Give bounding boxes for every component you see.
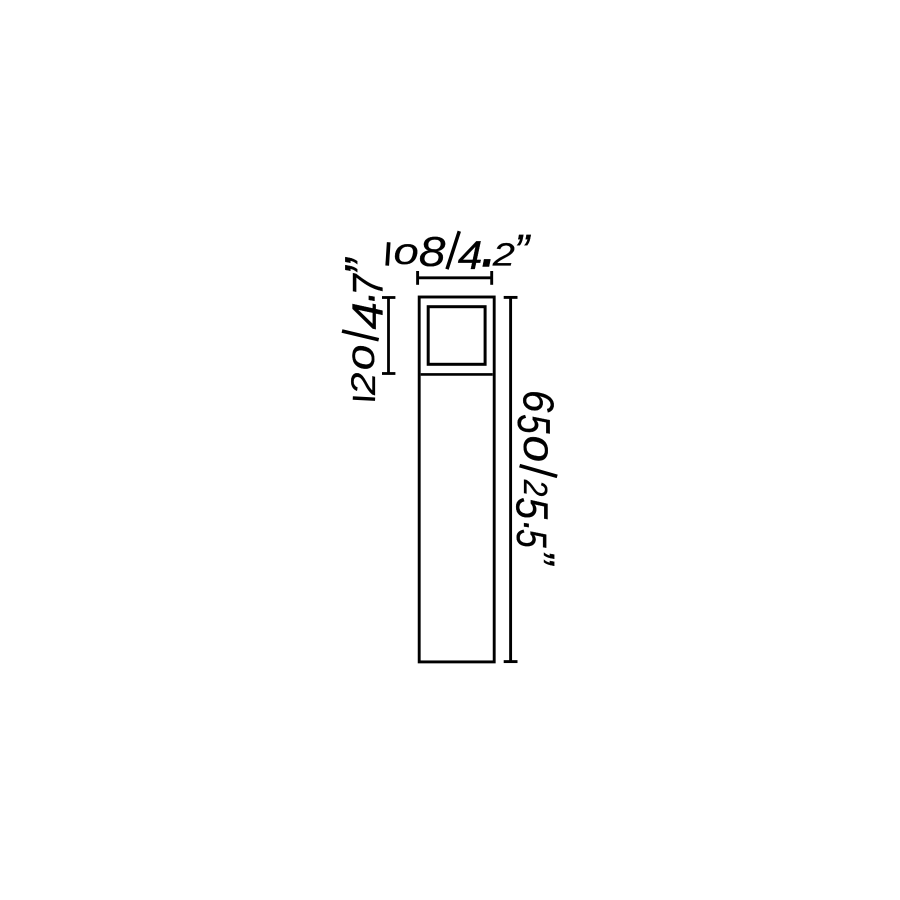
svg-text:8: 8 bbox=[419, 228, 446, 275]
svg-text:”: ” bbox=[512, 550, 564, 566]
svg-text:4: 4 bbox=[343, 302, 392, 329]
svg-text:2: 2 bbox=[516, 479, 554, 496]
svg-text:2: 2 bbox=[492, 237, 515, 273]
svg-text:5: 5 bbox=[508, 529, 556, 548]
svg-text:o: o bbox=[514, 436, 564, 463]
svg-text:”: ” bbox=[334, 257, 394, 276]
svg-text:”: ” bbox=[514, 225, 531, 278]
svg-text:5: 5 bbox=[507, 497, 558, 519]
svg-text:5: 5 bbox=[508, 414, 560, 433]
svg-text:6: 6 bbox=[514, 390, 563, 413]
svg-text:2: 2 bbox=[344, 373, 382, 396]
svg-text:4: 4 bbox=[458, 233, 483, 278]
svg-text:o: o bbox=[338, 345, 383, 371]
svg-text:7: 7 bbox=[344, 273, 392, 296]
svg-text:o: o bbox=[394, 231, 419, 272]
